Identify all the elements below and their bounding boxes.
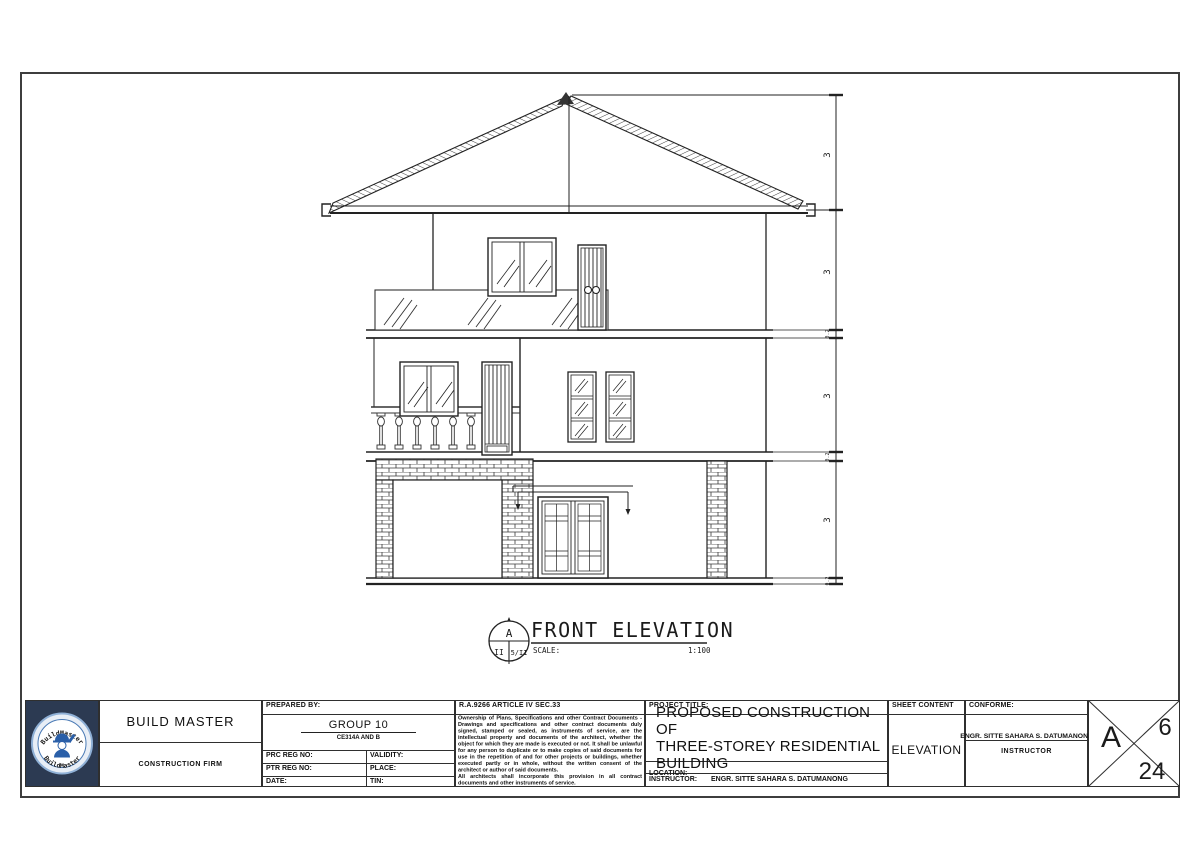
sheet-number-graphic: A 6 24 [1089,701,1179,786]
sheet-content-cell: SHEET CONTENT ELEVATION [888,700,965,787]
elevation-drawing: 3 3 3 3 0.2 0.2 0.2 A II 5/II FRONT ELEV… [0,0,1200,700]
prc-reg-label: PRC REG NO: [263,751,313,759]
dim-label: 3 [823,393,833,398]
firm-name: BUILD MASTER [126,714,234,729]
scale-value: 1:100 [688,646,711,655]
sheet-content-value: ELEVATION [891,743,961,757]
door-knob [585,287,592,294]
sheet-series: A [1101,721,1121,754]
project-title-line1: PROPOSED CONSTRUCTION OF [656,704,887,738]
door-2f [482,362,512,455]
garage-opening [393,480,502,578]
prepared-by-label: PREPARED BY: [263,701,454,715]
door-3f [578,245,606,330]
door-knob [593,287,600,294]
windows-2f-right [568,372,634,442]
conforme-label: CONFORME: [966,701,1087,715]
tin-label: TIN: [366,777,455,787]
firm-subtitle: CONSTRUCTION FIRM [139,761,223,768]
sheet-content-label: SHEET CONTENT [889,701,964,715]
dim-label: 3 [823,269,833,274]
group-name: GROUP 10 [301,719,416,733]
firm-cell: BUILD MASTER CONSTRUCTION FIRM [99,700,262,787]
dim-label: 3 [823,152,833,157]
instructor-label: INSTRUCTOR: [646,775,697,783]
conforme-title: INSTRUCTOR [1001,748,1052,755]
ra-body-paragraph-1: Ownership of Plans, Specifications and o… [458,715,642,773]
window-2f [400,362,458,416]
window-3f [488,238,556,296]
place-label: PLACE: [366,764,455,777]
conforme-name: ENGR. SITTE SAHARA S. DATUMANONG [960,733,1093,740]
ra-header: R.A.9266 ARTICLE IV SEC.33 [456,701,644,715]
marker-ref-left: II [494,648,504,657]
sheet-number: 6 [1158,714,1171,741]
sheet-total: 24 [1139,758,1166,785]
drawing-title-group: FRONT ELEVATION SCALE: 1:100 [531,618,734,655]
sheet-number-cell: A 6 24 [1088,700,1180,787]
buildmaster-logo: BuildMaster BuildMaster [26,701,98,786]
scale-label: SCALE: [533,646,560,655]
group-section: CE314A AND B [337,734,380,741]
dim-slab-label: 0.2 [825,329,831,338]
ra-clause-cell: R.A.9266 ARTICLE IV SEC.33 Ownership of … [455,700,645,787]
dim-label: 3 [823,517,833,522]
dim-slab-label: 0.2 [825,576,831,585]
date-label: DATE: [263,777,287,785]
drawing-title: FRONT ELEVATION [531,618,734,642]
conforme-cell: CONFORME: ENGR. SITTE SAHARA S. DATUMANO… [965,700,1088,787]
project-title-cell: PROJECT TITLE: PROPOSED CONSTRUCTION OF … [645,700,888,787]
marker-ref-right: 5/II [511,649,528,657]
dim-slab-label: 0.2 [825,452,831,461]
validity-label: VALIDITY: [366,751,455,764]
drawing-sheet: 3 3 3 3 0.2 0.2 0.2 A II 5/II FRONT ELEV… [0,0,1200,848]
elevation-marker: A II 5/II [489,617,529,664]
logo-cell: BuildMaster BuildMaster [25,700,99,787]
ra-body-paragraph-2: All architects shall incorporate this pr… [458,773,642,785]
marker-letter: A [506,627,513,640]
prepared-by-cell: PREPARED BY: GROUP 10 CE314A AND B PRC R… [262,700,455,787]
instructor-name: ENGR. SITTE SAHARA S. DATUMANONG [708,775,848,783]
entry-door [538,497,608,578]
ptr-reg-label: PTR REG NO: [263,764,312,772]
roof-group [322,92,815,216]
